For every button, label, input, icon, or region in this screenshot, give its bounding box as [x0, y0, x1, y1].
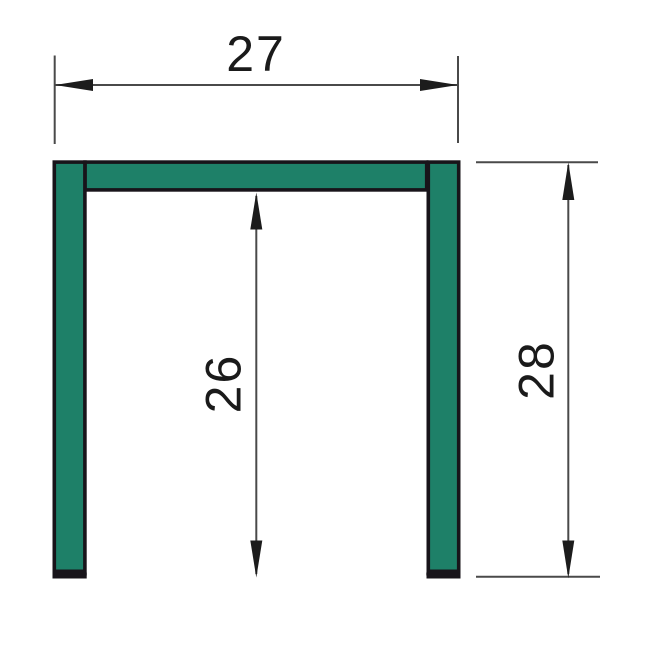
- svg-text:28: 28: [509, 340, 565, 400]
- svg-text:27: 27: [226, 26, 286, 82]
- svg-text:26: 26: [196, 354, 252, 414]
